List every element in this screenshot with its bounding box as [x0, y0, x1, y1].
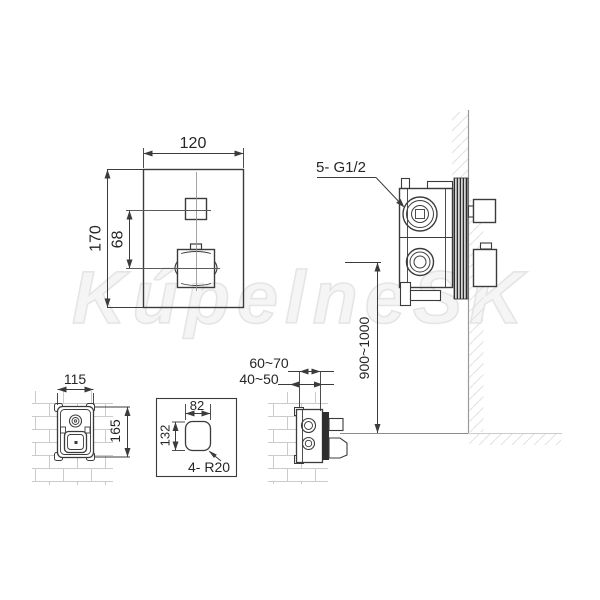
handle-arc-top: [181, 252, 211, 254]
cutout-opening: [186, 422, 211, 451]
knob-upper-side: [329, 419, 343, 431]
label-connection-g12: 5- G1/2: [316, 160, 366, 177]
upper-knob-stem: [469, 206, 474, 217]
outlet-pipe-horizontal: [411, 291, 441, 301]
upper-knob: [474, 200, 496, 223]
trim-edge-dark: [322, 412, 329, 460]
diverter-button: [186, 199, 207, 220]
floor-hatch: [470, 434, 562, 445]
wall-hatch-lower: [470, 200, 484, 432]
body-top-step: [428, 182, 453, 189]
dim-label-115: 115: [45, 372, 105, 387]
outlet-pipe-vertical: [401, 283, 411, 306]
mounting-ear-top: [402, 179, 410, 189]
port-upper: [403, 197, 437, 231]
dim-label-132: 132: [159, 406, 174, 466]
dim-label-82: 82: [167, 399, 227, 413]
lower-knob: [474, 250, 497, 287]
dim-label-60-70: 60~70: [239, 356, 299, 371]
trim-plate-outline: [144, 170, 244, 308]
dim-label-120: 120: [163, 135, 223, 153]
handle-arc-bottom: [181, 284, 211, 286]
lower-knob-tab: [481, 243, 492, 249]
dim-label-900-1000: 900~1000: [357, 308, 373, 388]
knob-lower-side: [329, 438, 347, 458]
spindle-center: [75, 441, 78, 444]
dim-label-170: 170: [88, 209, 105, 269]
label-corner-radius: 4- R20: [188, 460, 230, 475]
handle-tab: [191, 244, 202, 250]
dim-label-165: 165: [108, 401, 124, 461]
technical-drawing-canvas: KúpelneSK: [0, 0, 600, 600]
trim-plate-edge: [454, 178, 468, 299]
embedded-body: [297, 410, 323, 463]
drawing-linework: [0, 0, 600, 600]
wall-and-floor: [340, 110, 562, 445]
dim-label-68: 68: [110, 210, 127, 270]
port-lower: [407, 249, 434, 276]
dim-label-40-50: 40~50: [229, 372, 289, 387]
